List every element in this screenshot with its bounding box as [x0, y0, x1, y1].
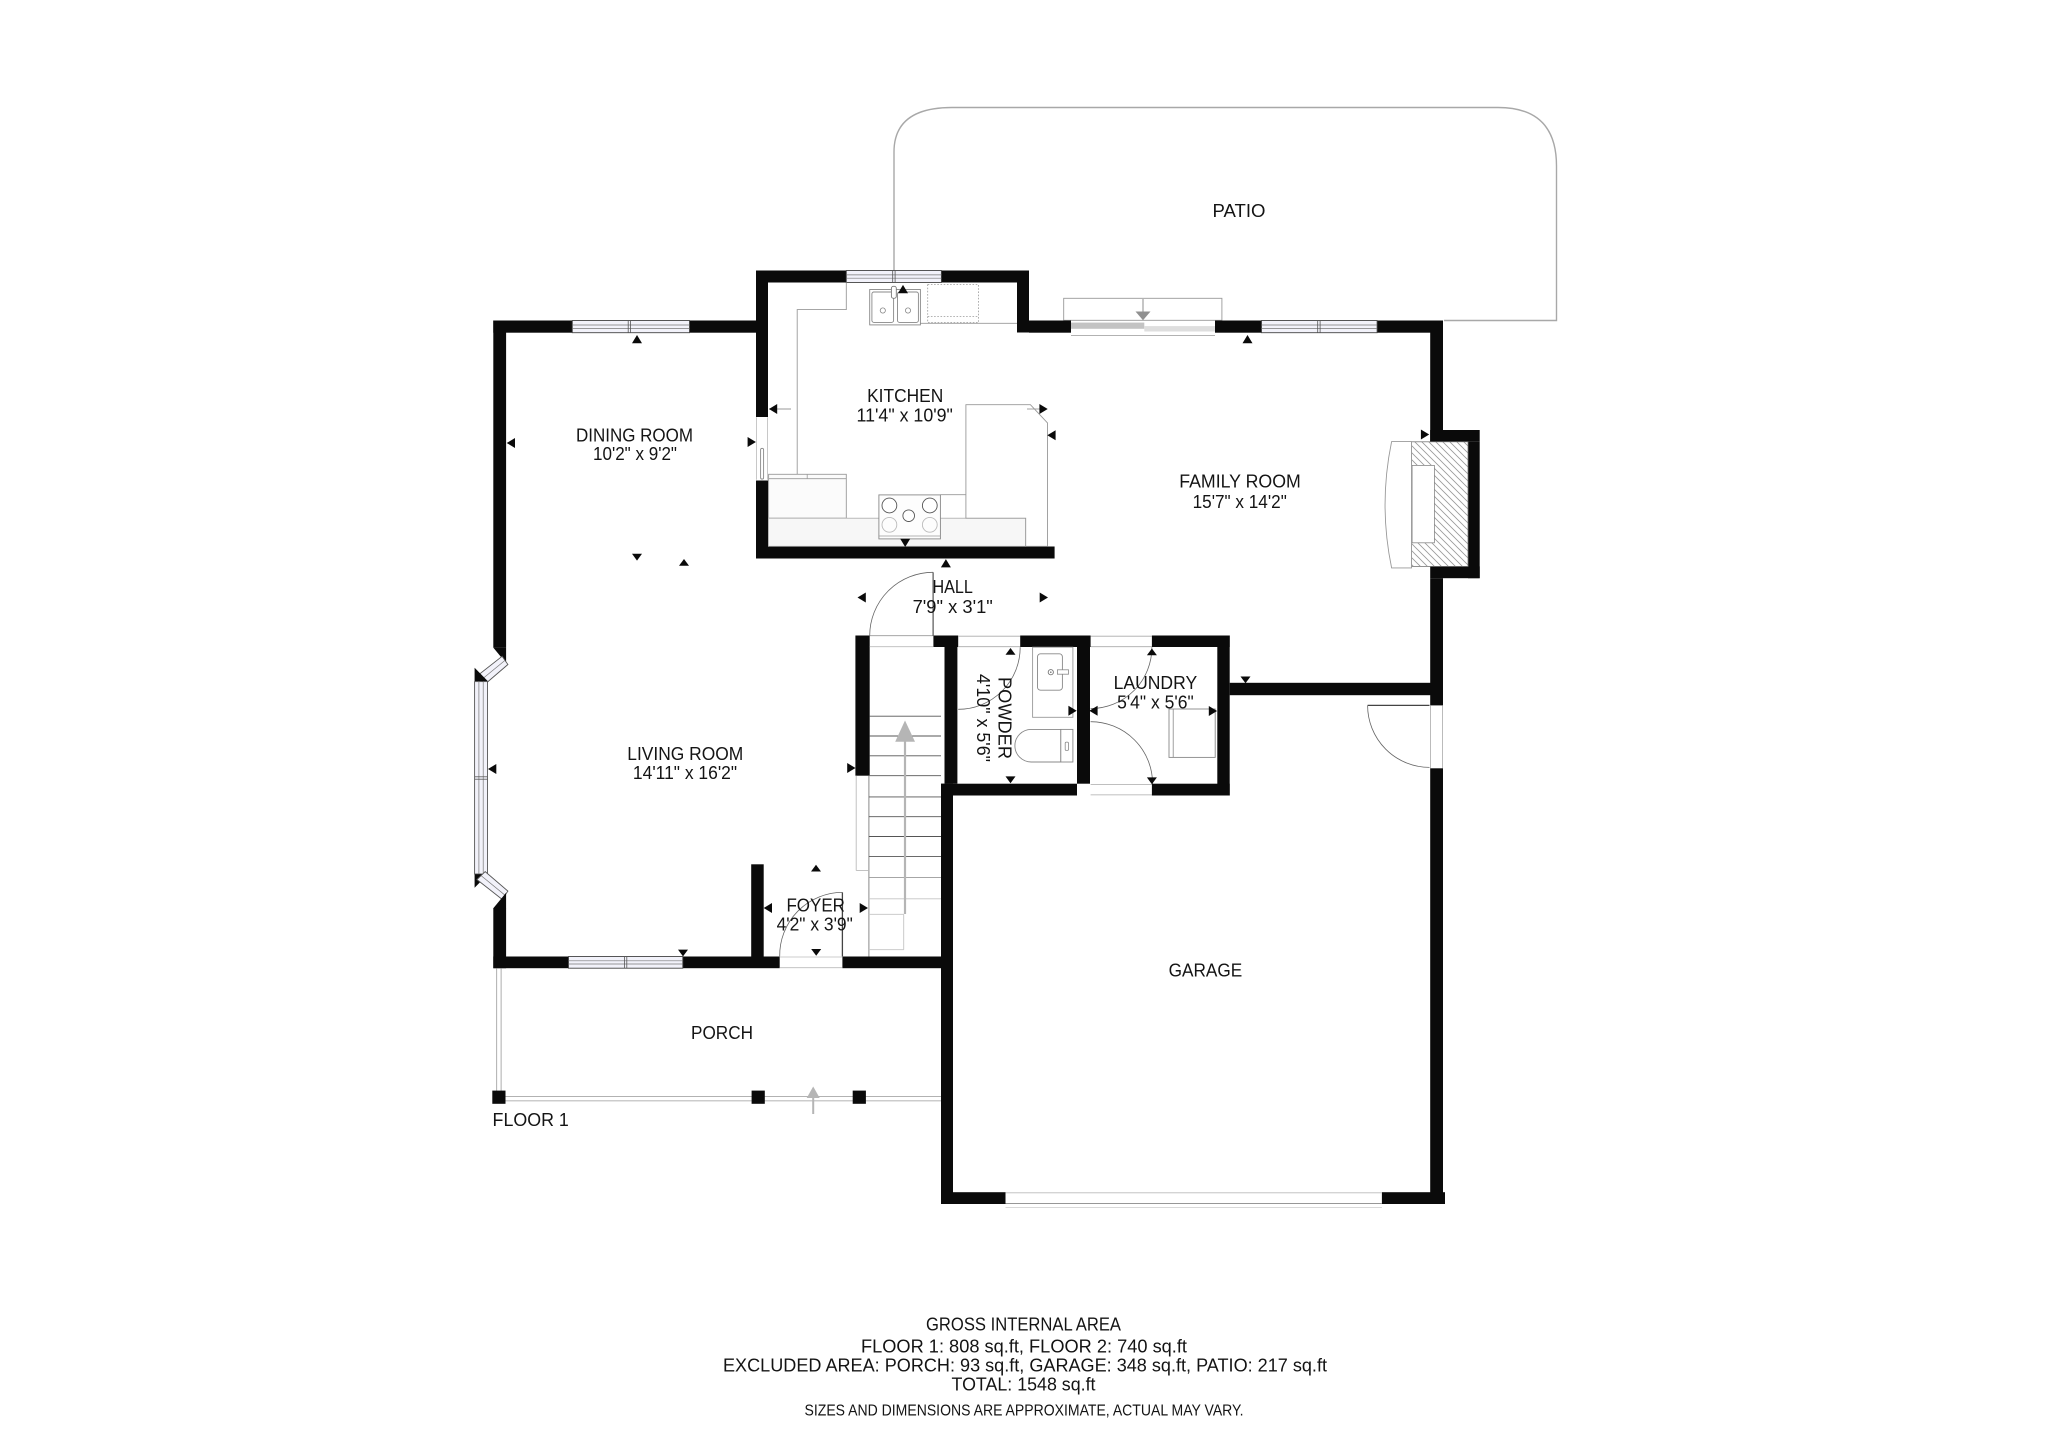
svg-text:GROSS INTERNAL AREA: GROSS INTERNAL AREA	[926, 1313, 1122, 1334]
svg-text:14'11" x 16'2": 14'11" x 16'2"	[633, 762, 737, 783]
svg-text:SIZES AND DIMENSIONS ARE APPRO: SIZES AND DIMENSIONS ARE APPROXIMATE, AC…	[805, 1403, 1244, 1420]
svg-text:LAUNDRY: LAUNDRY	[1114, 672, 1198, 693]
svg-text:KITCHEN: KITCHEN	[867, 385, 943, 406]
svg-text:FAMILY ROOM: FAMILY ROOM	[1179, 471, 1301, 492]
svg-text:10'2" x 9'2": 10'2" x 9'2"	[593, 443, 677, 464]
svg-text:GARAGE: GARAGE	[1169, 959, 1243, 980]
svg-text:4'2" x 3'9": 4'2" x 3'9"	[777, 913, 853, 934]
svg-text:5'4" x 5'6": 5'4" x 5'6"	[1117, 692, 1194, 713]
svg-text:TOTAL: 1548 sq.ft: TOTAL: 1548 sq.ft	[952, 1373, 1096, 1394]
svg-text:4'10" x 5'6": 4'10" x 5'6"	[973, 674, 994, 762]
svg-text:15'7" x 14'2": 15'7" x 14'2"	[1193, 491, 1287, 512]
svg-text:POWDER: POWDER	[994, 677, 1015, 759]
svg-text:FLOOR 1: FLOOR 1	[493, 1109, 569, 1130]
svg-text:11'4" x 10'9": 11'4" x 10'9"	[857, 404, 953, 425]
svg-text:7'9" x 3'1": 7'9" x 3'1"	[913, 596, 993, 617]
svg-text:LIVING ROOM: LIVING ROOM	[627, 743, 743, 764]
svg-text:FOYER: FOYER	[786, 895, 845, 916]
svg-text:EXCLUDED AREA: PORCH: 93 sq.ft: EXCLUDED AREA: PORCH: 93 sq.ft, GARAGE: …	[723, 1354, 1327, 1375]
svg-text:PATIO: PATIO	[1213, 200, 1266, 221]
svg-text:PORCH: PORCH	[691, 1022, 753, 1043]
svg-text:FLOOR 1: 808 sq.ft, FLOOR 2: 7: FLOOR 1: 808 sq.ft, FLOOR 2: 740 sq.ft	[861, 1335, 1187, 1356]
svg-text:HALL: HALL	[933, 576, 973, 597]
